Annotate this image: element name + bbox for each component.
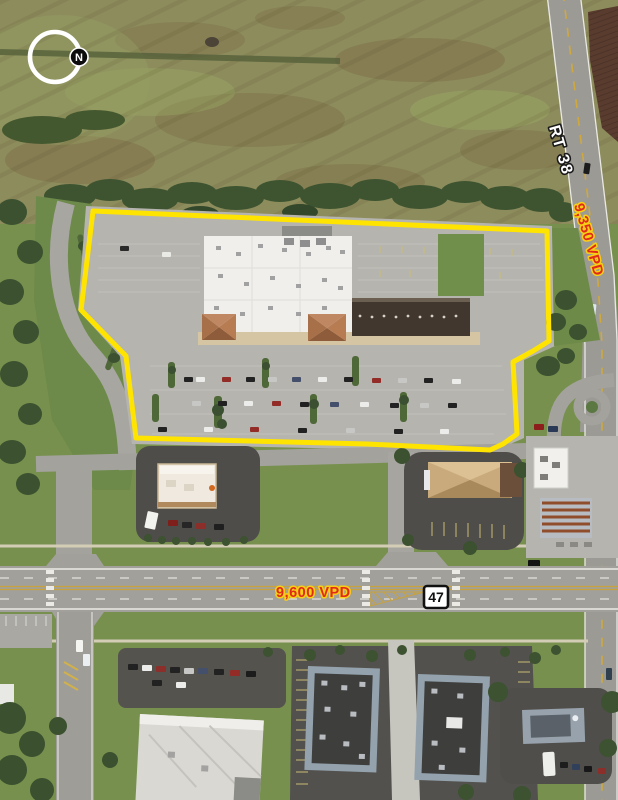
strip-building bbox=[352, 298, 470, 336]
gas-station bbox=[526, 424, 618, 567]
delivery-truck bbox=[542, 752, 555, 777]
route47-traffic-label: 9,600 VPD bbox=[276, 585, 351, 601]
car-wash-building bbox=[534, 448, 568, 488]
southwest-building bbox=[135, 714, 263, 800]
outparcel-right-building bbox=[394, 448, 530, 555]
west-leg-road bbox=[56, 468, 92, 568]
entry-canopy-right bbox=[308, 314, 346, 341]
route47-shield-number: 47 bbox=[428, 589, 444, 605]
southeast-restaurant bbox=[522, 708, 585, 744]
strip-building-a bbox=[304, 666, 380, 772]
route47-shield: 47 bbox=[424, 586, 448, 608]
aerial-screenshot: N RT 38 9,350 VPD 9,600 VPD 47 bbox=[0, 0, 618, 800]
southwest-parking bbox=[118, 648, 286, 708]
hip-roof bbox=[424, 462, 522, 498]
south-west-road bbox=[56, 612, 94, 800]
south-development bbox=[0, 612, 618, 800]
restaurant-logo-dot bbox=[209, 485, 215, 491]
strip-building-b bbox=[414, 674, 490, 782]
outparcel-left-restaurant bbox=[136, 446, 260, 546]
lot-grass-island bbox=[438, 234, 484, 296]
aerial-map: N RT 38 9,350 VPD 9,600 VPD 47 bbox=[0, 0, 618, 800]
entry-canopy-left bbox=[202, 314, 236, 340]
fuel-canopy bbox=[540, 498, 592, 538]
compass-north-label: N bbox=[75, 52, 83, 64]
